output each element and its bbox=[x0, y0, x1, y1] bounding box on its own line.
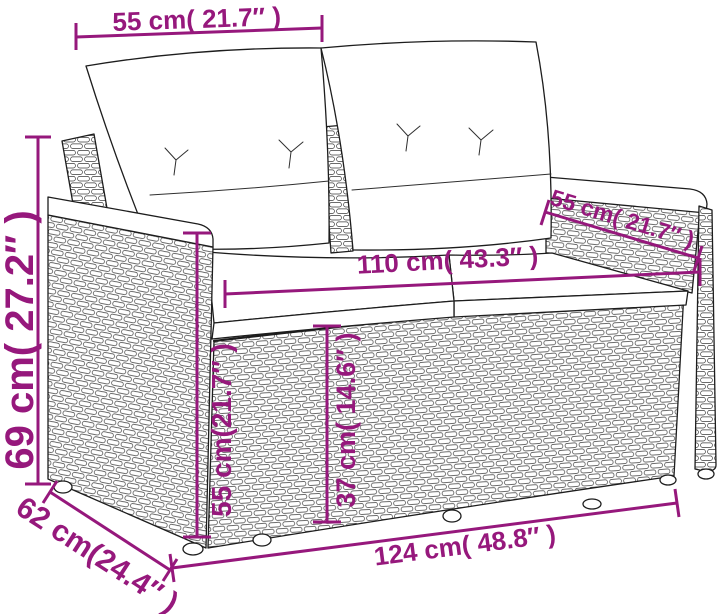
back-cushion-right bbox=[321, 41, 551, 250]
dim-tick bbox=[675, 489, 679, 517]
dim-overall-height: 69 cm( 27.2″ ) bbox=[0, 137, 51, 484]
sofa-foot bbox=[698, 469, 714, 479]
dim-back-cushion-width-label: 55 cm( 21.7″ ) bbox=[112, 1, 281, 37]
diagram-svg: 55 cm( 21.7″ ) 69 cm( 27.2″ ) 55 cm( 21.… bbox=[0, 0, 720, 614]
sofa-foot bbox=[583, 499, 601, 509]
sofa-foot bbox=[660, 475, 676, 485]
dim-overall-height-label: 69 cm( 27.2″ ) bbox=[0, 210, 42, 469]
dim-seat-height-label: 37 cm( 14.6″ ) bbox=[331, 332, 361, 507]
sofa-foot bbox=[253, 534, 271, 546]
left-armrest-front bbox=[48, 215, 213, 548]
sofa-foot bbox=[183, 543, 203, 555]
dim-overall-width-label: 124 cm( 48.8″ ) bbox=[372, 519, 557, 572]
right-armrest-front bbox=[695, 206, 716, 471]
dim-back-cushion-width: 55 cm( 21.7″ ) bbox=[76, 1, 322, 50]
sofa-line-drawing bbox=[48, 41, 716, 555]
dim-armrest-height-label: 55 cm(21.7″ ) bbox=[206, 343, 237, 517]
sofa-foot bbox=[443, 510, 461, 522]
product-dimension-diagram: 55 cm( 21.7″ ) 69 cm( 27.2″ ) 55 cm( 21.… bbox=[0, 0, 720, 614]
